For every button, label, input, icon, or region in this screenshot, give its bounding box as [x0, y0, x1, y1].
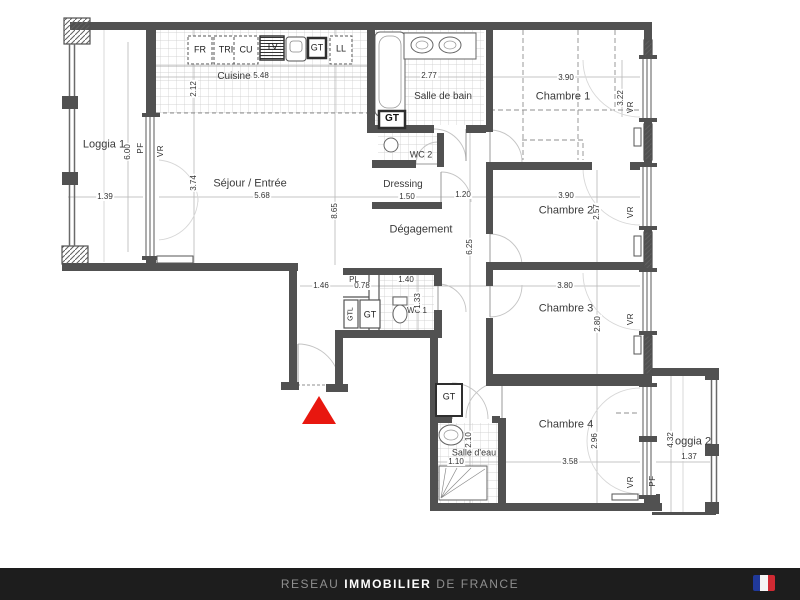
- fridge-label: FR: [194, 46, 206, 55]
- gt-sdb-label: GT: [385, 114, 399, 124]
- dim-chambre1-width: 3.90: [557, 74, 575, 82]
- room-label-cuisine: Cuisine: [217, 72, 250, 82]
- washer-label: LL: [336, 45, 346, 54]
- dim-chambre3-width: 3.80: [556, 282, 574, 290]
- vr-chambre2-label: VR: [627, 206, 635, 218]
- tv-label: TV: [266, 43, 278, 52]
- room-label-wc2: WC 2: [410, 151, 433, 160]
- dim-sdb-width: 2.77: [420, 72, 438, 80]
- footer-bar: RESEAU IMMOBILIER DE FRANCE: [0, 568, 800, 600]
- chambre1-door-arc: [490, 130, 522, 162]
- entrance-marker: [302, 396, 336, 424]
- dim-wc1-width: 1.40: [397, 276, 415, 284]
- window-chambre2: [639, 163, 657, 230]
- dim-chambre2-width: 3.90: [557, 192, 575, 200]
- dim-sejour-height: 8.65: [331, 202, 339, 220]
- french-flag-icon: [753, 575, 775, 591]
- toilet-icon: [393, 305, 407, 323]
- toilet-tank: [393, 297, 407, 305]
- entrance-door-arc: [298, 344, 340, 386]
- chambre2-door-arc: [490, 234, 522, 266]
- gt-corridor-label: GT: [443, 393, 456, 402]
- pf-chambre4-label: PF: [649, 475, 657, 486]
- cooking-label: CU: [240, 46, 253, 55]
- window-chambre1: [639, 55, 657, 122]
- gtl-label: GTL: [348, 307, 355, 321]
- wc1-door-arc: [438, 284, 466, 312]
- dim-sde-width: 1.10: [447, 458, 465, 466]
- dim-loggia2-width: 1.37: [680, 453, 698, 461]
- dim-cuisine-depth: 2.12: [190, 80, 198, 98]
- pf-sejour-label: PF: [137, 142, 145, 153]
- room-label-degagement: Dégagement: [390, 225, 453, 236]
- dim-chambre4-width: 3.58: [561, 458, 579, 466]
- dim-wc1-height: 1.33: [414, 292, 422, 310]
- room-label-chambre1: Chambre 1: [536, 92, 590, 103]
- dim-dressing-width: 1.50: [398, 193, 416, 201]
- window-sejour-west: [142, 113, 160, 260]
- vr-sejour-label: VR: [157, 145, 165, 157]
- room-label-sejour: Séjour / Entrée: [213, 179, 286, 190]
- brand-text: RESEAU IMMOBILIER DE FRANCE: [0, 568, 800, 600]
- dim-sejour-width: 5.68: [253, 192, 271, 200]
- dim-sejour-depth: 3.74: [190, 174, 198, 192]
- chambre4-door-arc: [466, 382, 502, 418]
- chambre3-door-arc: [490, 285, 522, 317]
- floorplan-page: Loggia 1 Cuisine Séjour / Entrée Salle d…: [0, 0, 800, 600]
- room-label-salle-de-bain: Salle de bain: [414, 92, 472, 102]
- room-label-dressing: Dressing: [383, 180, 422, 190]
- brand-suffix: DE FRANCE: [436, 577, 519, 591]
- room-label-chambre2: Chambre 2: [539, 206, 593, 217]
- vr-chambre4-label: VR: [627, 476, 635, 488]
- wc2-basin-icon: [384, 138, 398, 152]
- dim-loggia1-width: 1.39: [96, 193, 114, 201]
- dim-hall-height: 6.25: [466, 238, 474, 256]
- dim-cuisine-width: 5.48: [252, 72, 270, 80]
- dim-placard-width: 0.78: [353, 282, 371, 290]
- ceiling-dashed-lines: [490, 30, 648, 413]
- dim-chambre3-depth: 2.80: [594, 315, 602, 333]
- dim-chambre1-depth: 3.22: [617, 89, 625, 107]
- dim-sde-height: 2.10: [465, 431, 473, 449]
- dim-vestibule-width: 1.46: [312, 282, 330, 290]
- dim-chambre4-depth: 2.96: [591, 432, 599, 450]
- vr-chambre3-label: VR: [627, 313, 635, 325]
- dim-loggia1-height: 6.00: [124, 143, 132, 161]
- gt-kitchen-label: GT: [311, 44, 324, 53]
- brand-main: IMMOBILIER: [344, 577, 431, 591]
- tri-label: TRI: [219, 46, 234, 55]
- dim-chambre2-depth: 2.57: [593, 203, 601, 221]
- dim-hall-width: 1.20: [454, 191, 472, 199]
- floorplan-drawing: [0, 0, 800, 600]
- room-label-chambre3: Chambre 3: [539, 304, 593, 315]
- window-chambre3: [639, 268, 657, 335]
- brand-prefix: RESEAU: [281, 577, 339, 591]
- dim-loggia2-height: 4.32: [667, 431, 675, 449]
- room-label-loggia2: Loggia 2: [669, 437, 711, 448]
- vr-chambre1-label: VR: [627, 101, 635, 113]
- room-label-loggia1: Loggia 1: [83, 140, 125, 151]
- gt-block-label: GT: [364, 311, 377, 320]
- room-label-chambre4: Chambre 4: [539, 420, 593, 431]
